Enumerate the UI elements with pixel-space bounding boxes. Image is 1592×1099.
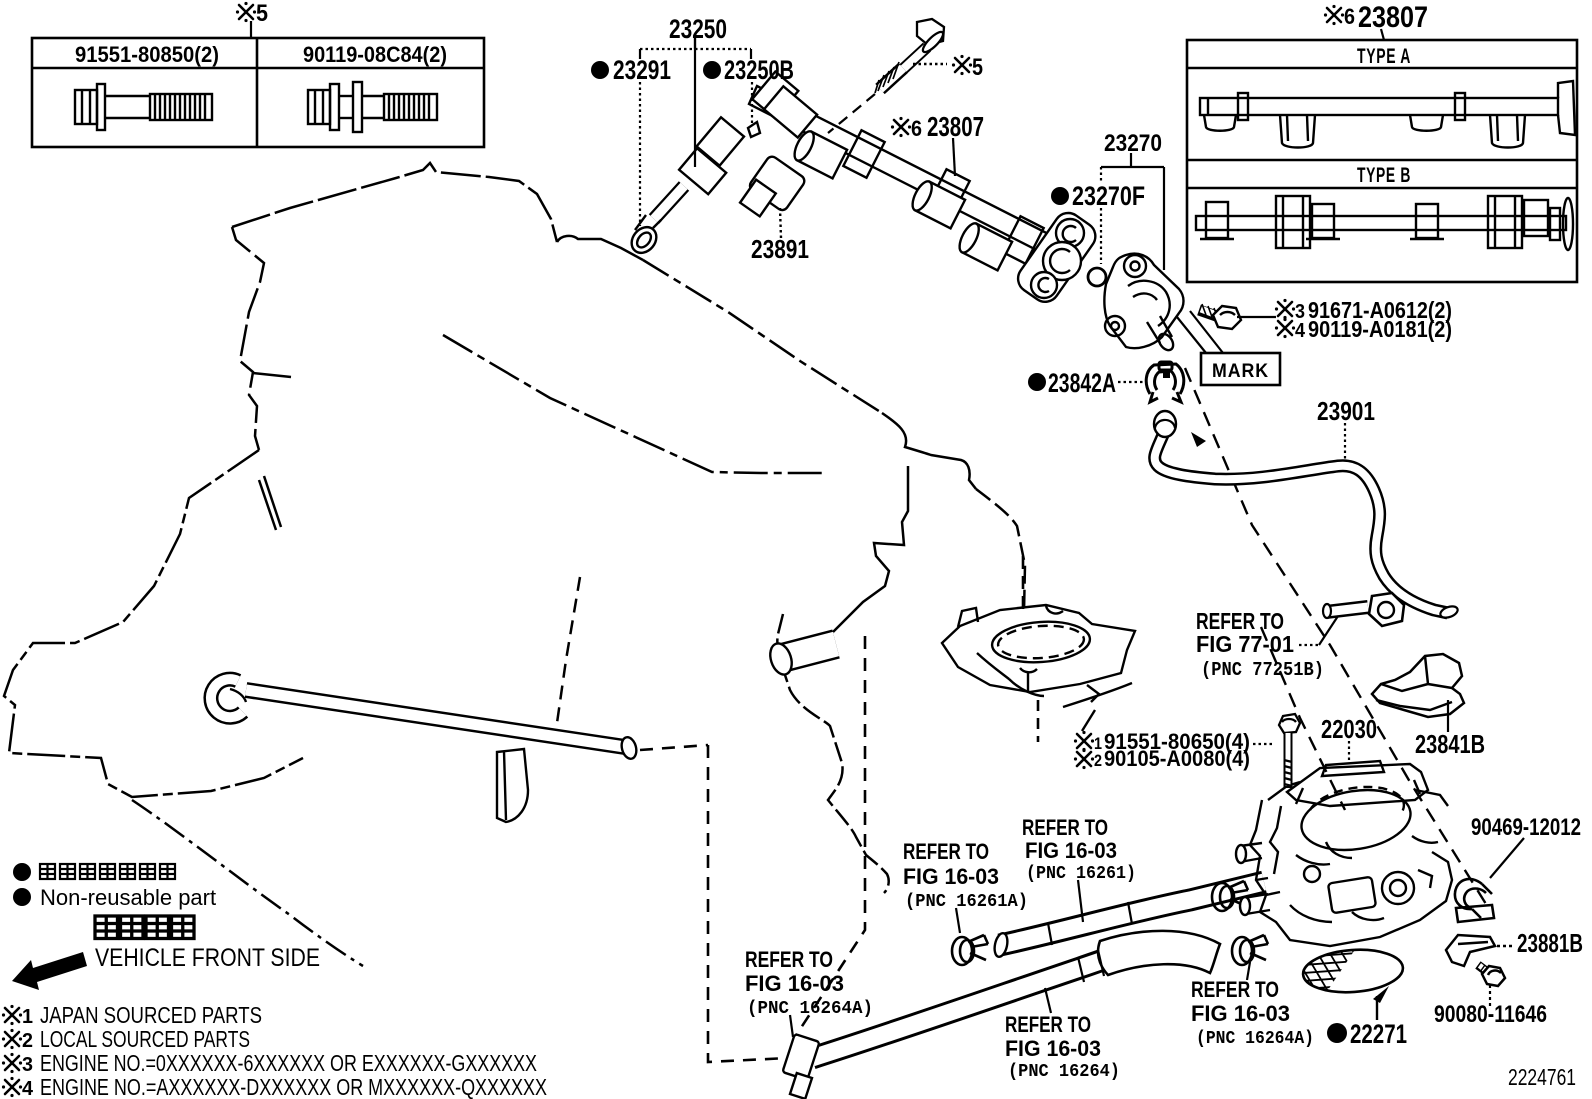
svg-text:6: 6 [911, 116, 922, 141]
svg-text:23891: 23891 [751, 234, 809, 264]
svg-text:JAPAN SOURCED PARTS: JAPAN SOURCED PARTS [40, 1002, 262, 1028]
svg-text:FIG 16-03: FIG 16-03 [1191, 1001, 1290, 1026]
svg-text:FIG 16-03: FIG 16-03 [903, 864, 999, 889]
svg-text:23901: 23901 [1317, 396, 1375, 426]
svg-text:22030: 22030 [1321, 714, 1377, 744]
svg-text:REFER TO: REFER TO [903, 839, 989, 864]
svg-text:(PNC 16261): (PNC 16261) [1026, 864, 1136, 884]
svg-text:REFER TO: REFER TO [1005, 1012, 1091, 1037]
svg-text:91551-80850(2): 91551-80850(2) [75, 42, 219, 67]
svg-text:VEHICLE FRONT SIDE: VEHICLE FRONT SIDE [95, 944, 320, 972]
svg-text:23270F: 23270F [1072, 181, 1145, 211]
svg-text:6: 6 [1344, 4, 1355, 29]
svg-text:23842A: 23842A [1048, 368, 1116, 398]
svg-text:4: 4 [1295, 320, 1306, 342]
svg-text:REFER TO: REFER TO [1022, 815, 1108, 840]
svg-text:90119-A0181(2): 90119-A0181(2) [1308, 316, 1452, 342]
svg-text:REFER TO: REFER TO [745, 947, 833, 972]
svg-text:FIG 16-03: FIG 16-03 [745, 971, 844, 996]
svg-text:REFER TO: REFER TO [1191, 977, 1279, 1002]
svg-text:90080-11646: 90080-11646 [1434, 1001, 1547, 1028]
svg-text:FIG 77-01: FIG 77-01 [1196, 631, 1294, 657]
svg-text:23291: 23291 [613, 55, 671, 85]
svg-text:5: 5 [256, 0, 268, 27]
svg-text:23270: 23270 [1104, 130, 1162, 157]
svg-text:TYPE A: TYPE A [1357, 45, 1411, 68]
svg-text:2224761: 2224761 [1508, 1064, 1576, 1090]
svg-text:23250: 23250 [669, 14, 727, 44]
svg-text:23807: 23807 [927, 111, 984, 142]
svg-text:3: 3 [22, 1054, 33, 1076]
svg-text:MARK: MARK [1212, 361, 1269, 382]
svg-text:22271: 22271 [1350, 1019, 1407, 1049]
svg-text:90119-08C84(2): 90119-08C84(2) [303, 42, 447, 67]
svg-text:23250B: 23250B [724, 55, 794, 85]
svg-text:Non-reusable part: Non-reusable part [40, 885, 216, 910]
svg-text:2: 2 [1094, 751, 1102, 770]
svg-text:(PNC 16264A): (PNC 16264A) [1196, 1029, 1314, 1049]
svg-text:23881B: 23881B [1517, 928, 1583, 958]
svg-text:ENGINE NO.=AXXXXXX-DXXXXXX OR: ENGINE NO.=AXXXXXX-DXXXXXX OR MXXXXXX-QX… [40, 1074, 547, 1099]
svg-text:(PNC 16264A): (PNC 16264A) [747, 999, 873, 1019]
svg-text:ENGINE NO.=0XXXXXX-6XXXXXX OR: ENGINE NO.=0XXXXXX-6XXXXXX OR EXXXXXX-GX… [40, 1050, 537, 1076]
svg-text:TYPE B: TYPE B [1357, 164, 1411, 187]
svg-text:LOCAL SOURCED PARTS: LOCAL SOURCED PARTS [40, 1026, 250, 1052]
svg-text:(PNC 16261A): (PNC 16261A) [905, 892, 1028, 912]
svg-text:4: 4 [22, 1078, 34, 1099]
svg-text:90105-A0080(4): 90105-A0080(4) [1104, 746, 1250, 771]
svg-text:1: 1 [22, 1006, 33, 1028]
svg-text:2: 2 [22, 1030, 33, 1052]
svg-text:23807: 23807 [1358, 1, 1428, 34]
svg-text:(PNC 16264): (PNC 16264) [1008, 1062, 1120, 1082]
svg-text:FIG 16-03: FIG 16-03 [1005, 1036, 1101, 1061]
svg-text:90469-12012: 90469-12012 [1471, 814, 1581, 841]
svg-text:FIG 16-03: FIG 16-03 [1025, 838, 1117, 863]
svg-text:23841B: 23841B [1415, 729, 1485, 759]
svg-text:5: 5 [972, 54, 983, 81]
svg-text:(PNC 77251B): (PNC 77251B) [1201, 659, 1324, 681]
